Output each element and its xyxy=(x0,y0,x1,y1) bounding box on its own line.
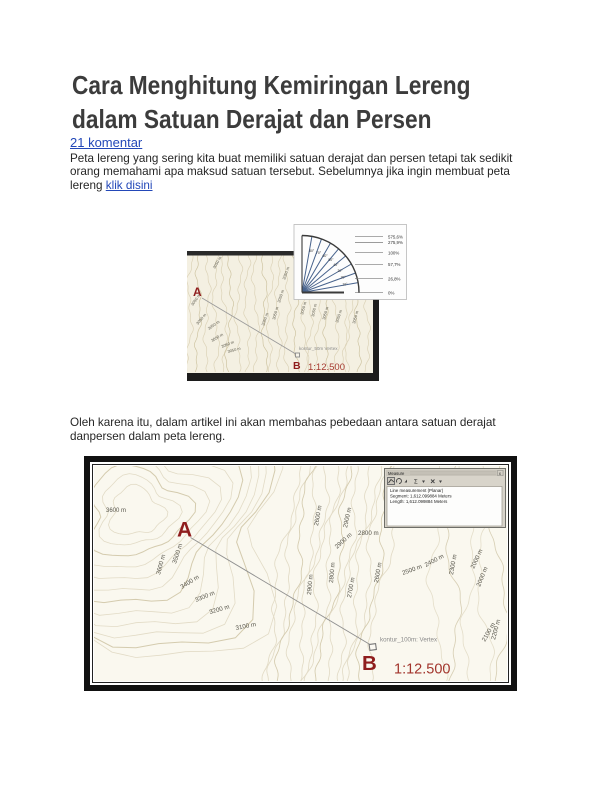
svg-text:30°: 30° xyxy=(338,269,344,273)
svg-text:Length: 1,612.099884 Meters: Length: 1,612.099884 Meters xyxy=(390,499,448,504)
svg-text:57,7%: 57,7% xyxy=(388,262,401,267)
svg-text:575,6%: 575,6% xyxy=(388,234,403,239)
svg-text:0%: 0% xyxy=(388,290,394,295)
svg-text:Segment: 1,612.099884 Meters: Segment: 1,612.099884 Meters xyxy=(390,494,452,499)
svg-text:1:12.500: 1:12.500 xyxy=(394,662,450,678)
svg-text:50°: 50° xyxy=(328,258,334,262)
svg-text:26,8%: 26,8% xyxy=(388,276,401,281)
svg-text:10°: 10° xyxy=(342,282,348,286)
svg-text:Line measurement (Planar): Line measurement (Planar) xyxy=(390,488,444,493)
svg-text:A: A xyxy=(193,285,202,299)
svg-text:1:12.500: 1:12.500 xyxy=(308,362,345,373)
svg-text:275,9%: 275,9% xyxy=(388,240,403,245)
svg-text:Σ: Σ xyxy=(414,480,418,486)
svg-text:Measure: Measure xyxy=(388,471,405,476)
svg-text:B: B xyxy=(362,652,377,675)
svg-text:60°: 60° xyxy=(323,254,329,258)
svg-text:100%: 100% xyxy=(388,250,399,255)
svg-text:kontur_50m Vertex: kontur_50m Vertex xyxy=(299,346,338,351)
svg-text:kontur_100m: Vertex: kontur_100m: Vertex xyxy=(380,637,438,644)
svg-text:2800 m: 2800 m xyxy=(358,530,379,537)
svg-text:3600 m: 3600 m xyxy=(106,508,126,514)
svg-text:70°: 70° xyxy=(316,251,322,255)
svg-text:20°: 20° xyxy=(341,276,347,280)
svg-text:40°: 40° xyxy=(333,263,339,267)
svg-text:B: B xyxy=(293,360,301,372)
svg-text:A: A xyxy=(177,519,192,542)
svg-text:80°: 80° xyxy=(309,249,315,253)
